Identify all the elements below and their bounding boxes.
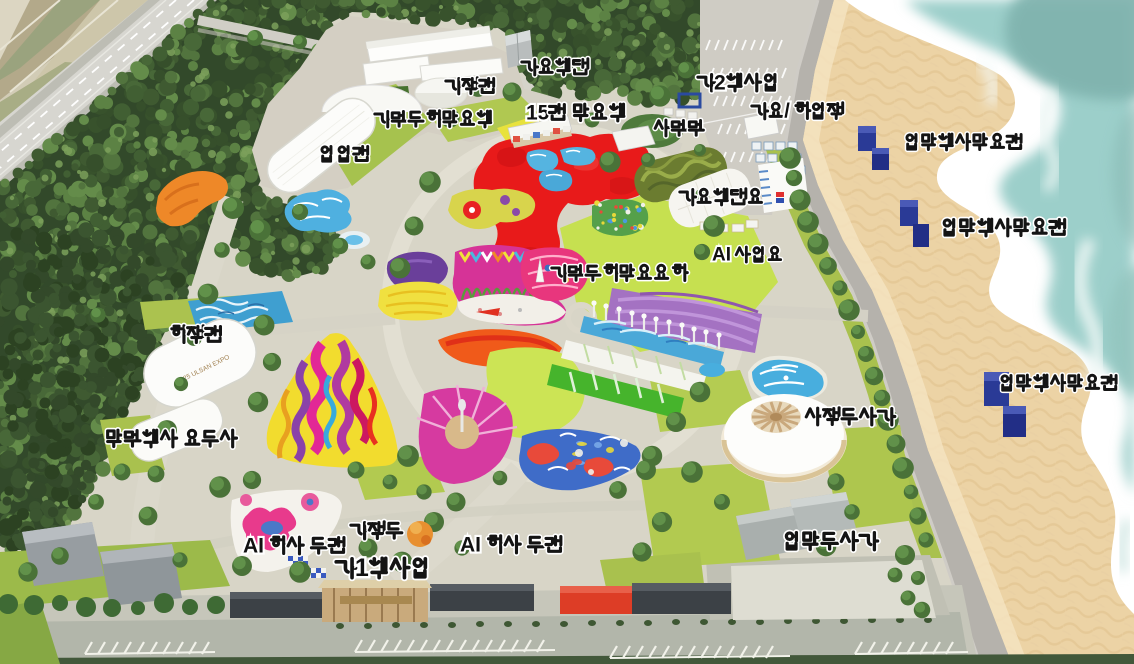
svg-text:AI: AI [460,533,481,556]
svg-text:AI: AI [712,245,731,266]
svg-text:15: 15 [526,101,550,124]
svg-text:1: 1 [355,554,369,582]
svg-text:AI: AI [243,534,264,557]
svg-text:2: 2 [714,71,726,94]
svg-text:/: / [784,101,790,123]
